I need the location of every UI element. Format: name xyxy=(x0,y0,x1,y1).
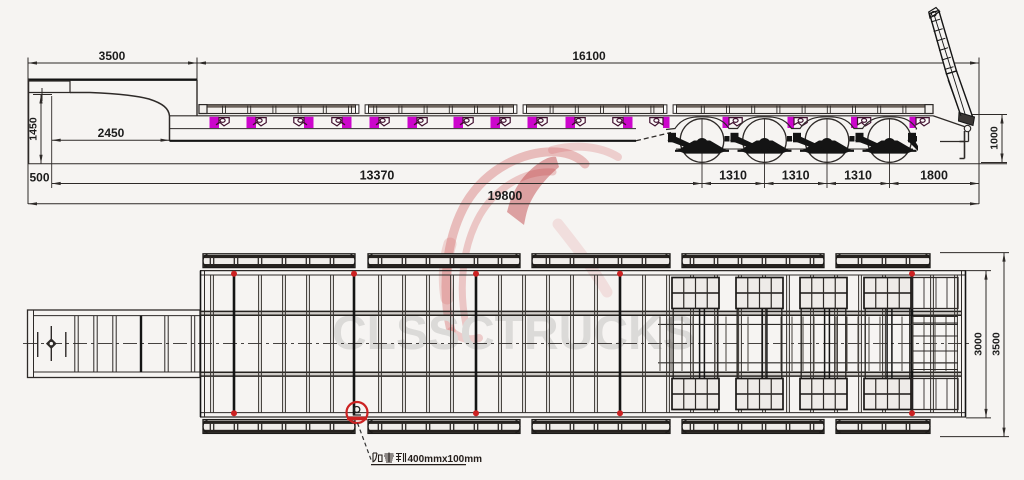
svg-text:1000: 1000 xyxy=(989,126,1001,150)
svg-text:16100: 16100 xyxy=(572,49,606,63)
svg-text:1310: 1310 xyxy=(782,169,810,183)
svg-text:19800: 19800 xyxy=(488,189,523,203)
svg-text:3500: 3500 xyxy=(991,332,1003,356)
svg-text:2450: 2450 xyxy=(98,126,125,140)
svg-text:13370: 13370 xyxy=(360,169,395,183)
svg-text:1310: 1310 xyxy=(719,169,747,183)
svg-text:400mmx100mm: 400mmx100mm xyxy=(408,454,483,465)
svg-text:1310: 1310 xyxy=(844,169,872,183)
svg-text:3500: 3500 xyxy=(99,49,126,63)
svg-text:3000: 3000 xyxy=(973,332,985,356)
svg-text:1800: 1800 xyxy=(920,169,948,183)
svg-text:500: 500 xyxy=(29,171,49,185)
svg-text:1450: 1450 xyxy=(28,117,40,141)
